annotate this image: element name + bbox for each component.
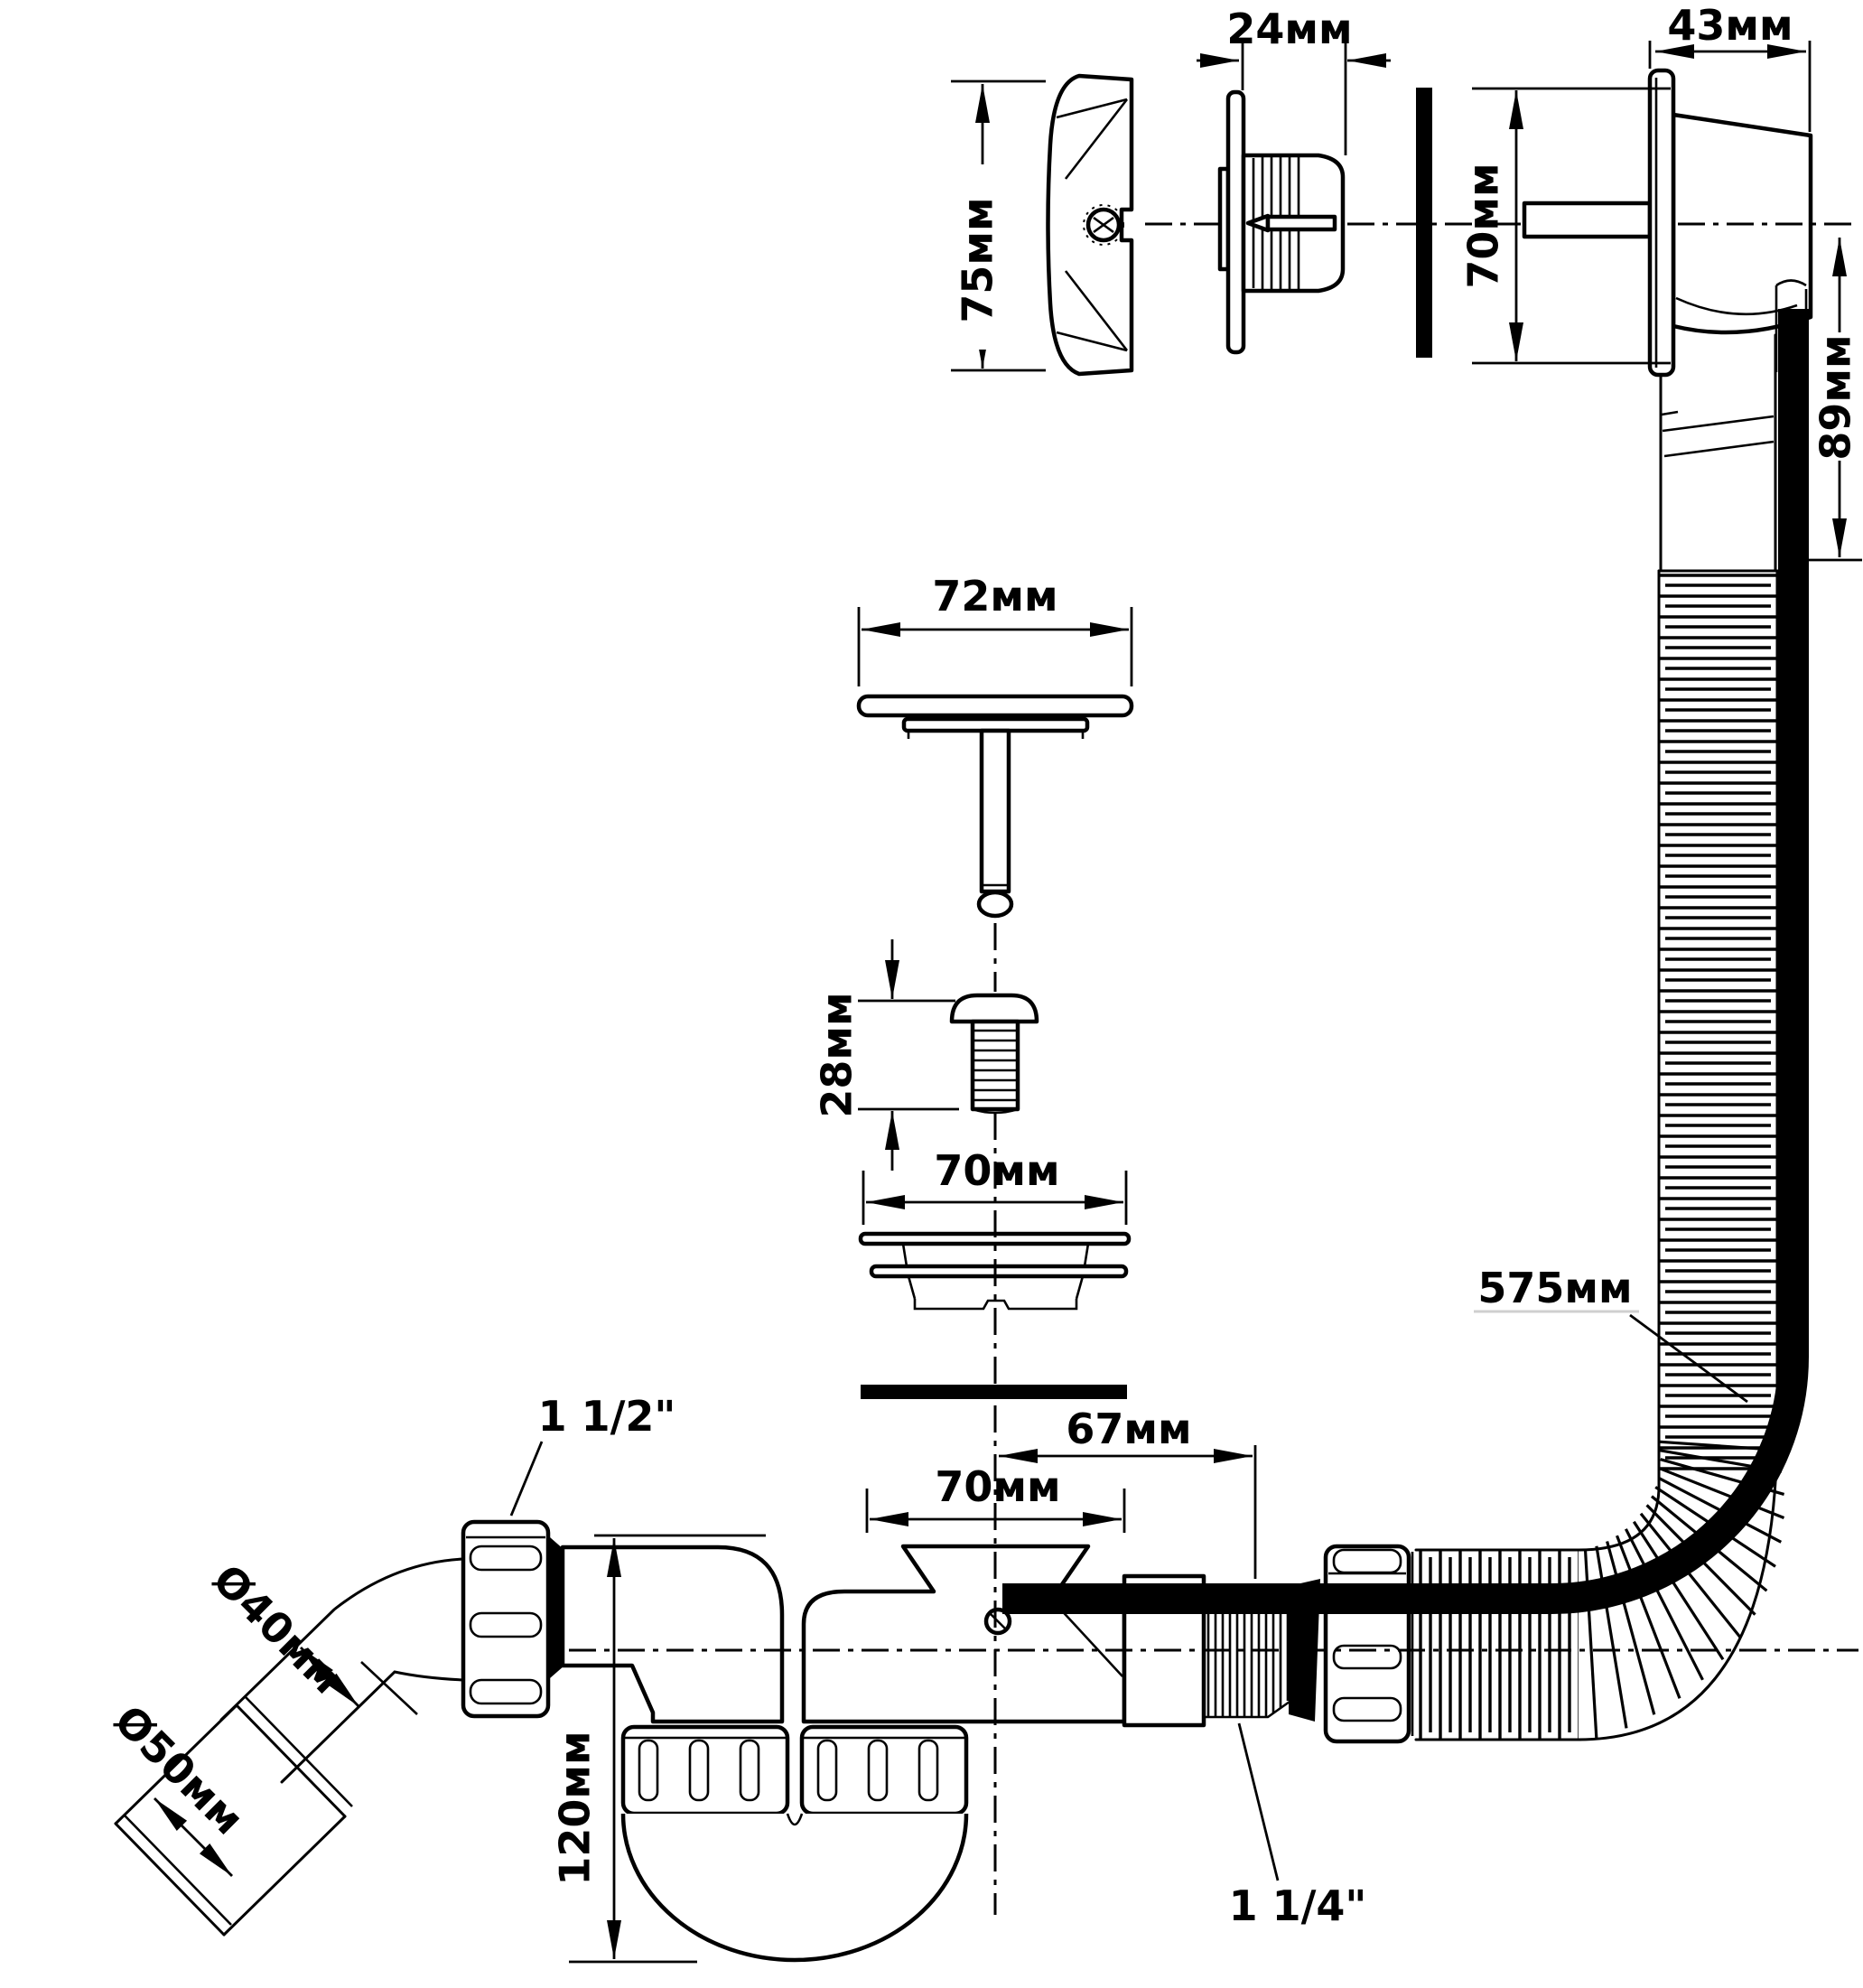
strainer-castellation <box>915 1299 1076 1309</box>
overflow-flange-plate <box>1228 92 1244 352</box>
strainer-wall <box>903 1244 907 1266</box>
hose-corrugation-vertical <box>1659 571 1777 1474</box>
dim-screw-length: 28мм <box>813 939 960 1171</box>
bath-siphon-diagram: 75мм 24мм 43мм 70мм 8 <box>0 0 1863 1988</box>
technical-drawing-page: 75мм 24мм 43мм 70мм 8 <box>0 0 1863 1988</box>
dim-label-72mm: 72мм <box>932 572 1057 621</box>
hose-tube-seam <box>1664 442 1774 456</box>
dim-label-70mm-bottom: 70мм <box>935 1462 1060 1511</box>
hose-tube-tick <box>1662 412 1678 415</box>
screw-head <box>952 995 1037 1022</box>
dim-plug-cap: 72мм <box>859 572 1132 686</box>
outlet-union-nut <box>463 1522 548 1716</box>
dim-label-24mm: 24мм <box>1226 5 1352 53</box>
dim-label-575mm: 575мм <box>1477 1264 1632 1312</box>
dim-outlet-pipe: Ø40мм <box>203 1554 359 1706</box>
dim-label-1-1-4: 1 1/4" <box>1229 1881 1367 1930</box>
outlet-sleeve-end <box>116 1824 224 1935</box>
dim-label-67mm: 67мм <box>1066 1405 1191 1453</box>
drain-plug <box>859 696 1132 916</box>
overflow-flange-piece <box>1220 92 1343 352</box>
trap-bowl <box>623 1814 966 1960</box>
dim-label-70mm-mid: 70мм <box>934 1146 1059 1195</box>
plug-stem <box>982 731 1009 891</box>
overflow-cover <box>1048 76 1132 374</box>
strainer-wall <box>1085 1244 1088 1266</box>
strainer-mid-plate <box>871 1266 1126 1276</box>
dim-flange-depth: 24мм <box>1197 5 1391 155</box>
dim-overflow-thread: 1 1/4" <box>1229 1723 1367 1930</box>
outlet-elbow-inner-line <box>361 1662 417 1714</box>
dim-label-120mm: 120мм <box>551 1731 600 1885</box>
plug-stem-ball <box>979 892 1011 916</box>
dim-outlet-drop: 89мм <box>1809 238 1863 560</box>
dim-outlet-thread: 1 1/2" <box>511 1392 675 1516</box>
hose-corrugation-horizontal <box>1416 1550 1579 1740</box>
dim-label-1-1-2: 1 1/2" <box>538 1392 676 1441</box>
dim-label-89mm: 89мм <box>1812 334 1860 460</box>
outlet-sleeve-lower-edge <box>224 1816 345 1935</box>
dim-label-75mm: 75мм <box>954 197 1002 322</box>
dim-label-43mm: 43мм <box>1667 1 1793 50</box>
strainer-wall <box>908 1276 915 1299</box>
hose-tube-seam <box>1663 416 1774 431</box>
screw-shaft <box>973 1022 1018 1109</box>
overflow-elbow <box>1524 70 1811 375</box>
overflow-flange-pin <box>1268 217 1335 229</box>
plug-screw <box>952 995 1037 1113</box>
overflow-elbow-stem <box>1524 203 1650 237</box>
strainer-wall <box>1076 1276 1083 1299</box>
outlet-cone-gasket <box>550 1537 564 1678</box>
dim-outlet-sleeve: Ø50мм <box>105 1695 253 1876</box>
dim-label-28mm: 28мм <box>813 992 862 1117</box>
trap-left-chamber <box>563 1547 782 1722</box>
dim-cover-height: 75мм <box>951 81 1046 370</box>
plug-cap-disc <box>859 696 1132 715</box>
outlet-45-assembly <box>116 1522 564 1935</box>
overflow-elbow-flange <box>1650 70 1673 375</box>
outlet-sleeve-joint <box>237 1705 345 1816</box>
dim-label-d40: Ø40мм <box>203 1554 351 1703</box>
dim-label-70mm-top: 70мм <box>1459 163 1508 288</box>
overflow-union-nut <box>1326 1546 1409 1741</box>
trap-inlet-chamber <box>804 1546 1124 1722</box>
outlet-sleeve-joint-inner <box>246 1697 352 1806</box>
